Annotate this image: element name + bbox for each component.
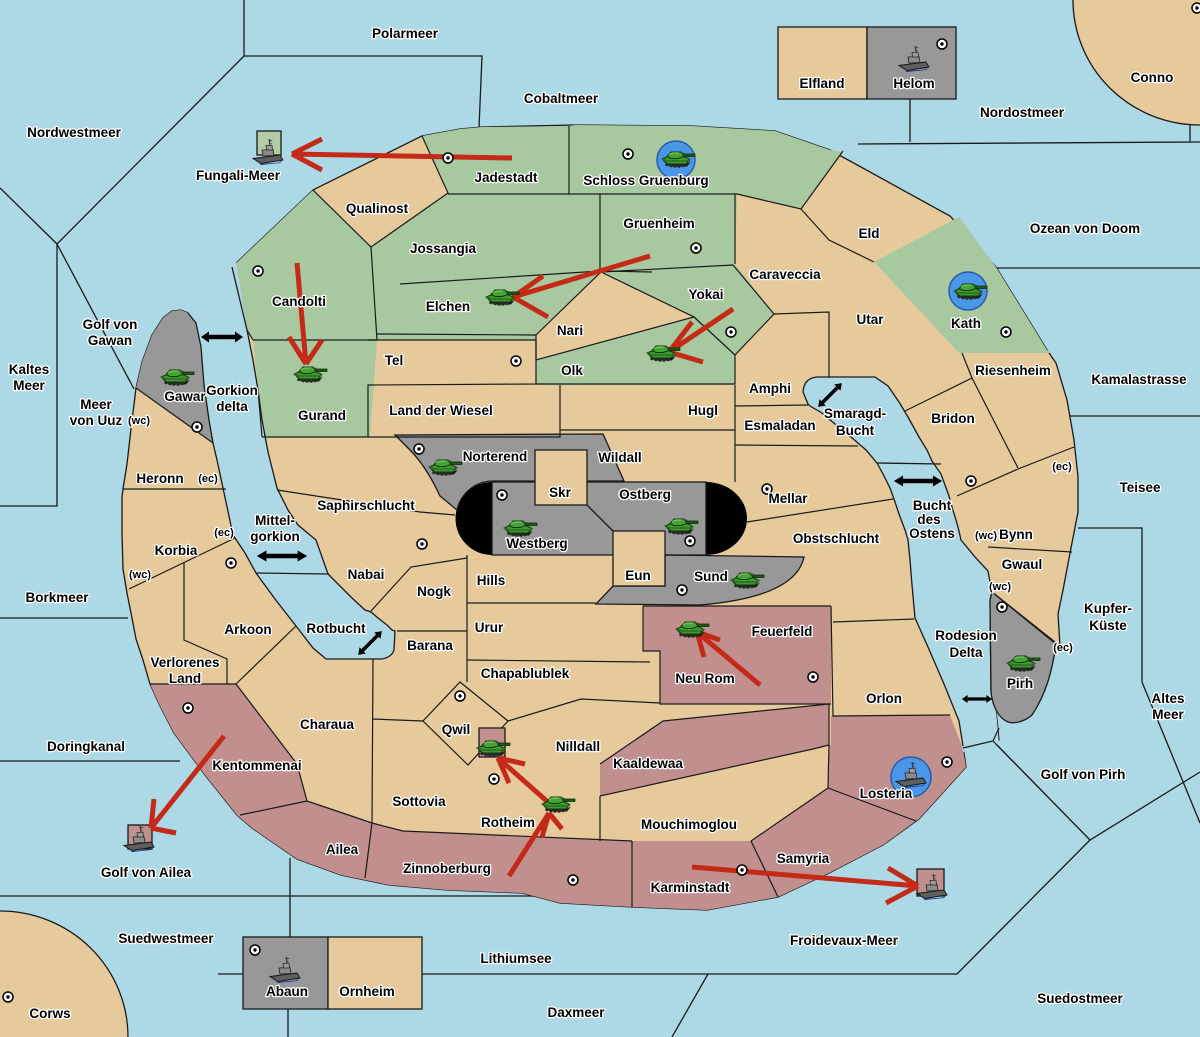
svg-text:Bucht: Bucht <box>836 423 875 438</box>
svg-text:Qwil: Qwil <box>442 722 471 737</box>
svg-text:(ec): (ec) <box>198 473 218 485</box>
svg-text:Esmaladan: Esmaladan <box>744 418 815 433</box>
svg-text:Borkmeer: Borkmeer <box>25 590 89 605</box>
svg-text:Arkoon: Arkoon <box>224 622 271 637</box>
svg-text:Delta: Delta <box>949 645 983 660</box>
svg-text:Suedostmeer: Suedostmeer <box>1037 991 1123 1006</box>
svg-text:Eun: Eun <box>625 568 651 583</box>
svg-text:Sottovia: Sottovia <box>392 794 446 809</box>
svg-text:Rodesion: Rodesion <box>935 628 997 643</box>
svg-text:(wc): (wc) <box>129 569 151 581</box>
svg-text:Doringkanal: Doringkanal <box>47 739 125 754</box>
svg-text:Saphirschlucht: Saphirschlucht <box>317 498 415 513</box>
svg-text:Smaragd-: Smaragd- <box>824 406 886 421</box>
svg-text:Gruenheim: Gruenheim <box>623 216 694 231</box>
svg-text:Land: Land <box>169 671 201 686</box>
svg-text:Lithiumsee: Lithiumsee <box>480 951 552 966</box>
svg-text:gorkion: gorkion <box>250 529 300 544</box>
svg-text:Sund: Sund <box>694 569 728 584</box>
svg-text:Pirh: Pirh <box>1007 676 1033 691</box>
svg-text:Korbia: Korbia <box>155 543 198 558</box>
svg-text:von Uuz: von Uuz <box>70 413 123 428</box>
svg-text:Kaaldewaa: Kaaldewaa <box>613 756 683 771</box>
svg-text:Golf von Ailea: Golf von Ailea <box>101 865 192 880</box>
svg-text:Karminstadt: Karminstadt <box>651 880 730 895</box>
svg-text:Nogk: Nogk <box>417 584 451 599</box>
svg-text:Conno: Conno <box>1131 70 1174 85</box>
svg-text:Elfland: Elfland <box>799 76 844 91</box>
svg-text:Nabai: Nabai <box>348 567 385 582</box>
svg-text:Nordwestmeer: Nordwestmeer <box>27 125 122 140</box>
svg-text:Mellar: Mellar <box>768 491 808 506</box>
svg-text:Rotbucht: Rotbucht <box>306 621 366 636</box>
svg-text:Orlon: Orlon <box>866 691 902 706</box>
svg-text:(ec): (ec) <box>1052 461 1072 473</box>
svg-text:Amphi: Amphi <box>749 381 791 396</box>
svg-text:Bucht: Bucht <box>913 498 952 513</box>
svg-text:Nari: Nari <box>557 323 583 338</box>
svg-text:Hills: Hills <box>477 573 506 588</box>
svg-text:Abaun: Abaun <box>266 984 308 999</box>
svg-text:Helom: Helom <box>893 76 934 91</box>
svg-text:(wc): (wc) <box>975 530 997 542</box>
svg-text:Samyria: Samyria <box>777 851 830 866</box>
svg-text:Kupfer-: Kupfer- <box>1084 601 1132 616</box>
svg-text:Meer: Meer <box>80 397 112 412</box>
svg-text:Gawar: Gawar <box>164 389 206 404</box>
svg-text:Jadestadt: Jadestadt <box>474 170 538 185</box>
svg-text:Bridon: Bridon <box>931 411 975 426</box>
svg-text:Froidevaux-Meer: Froidevaux-Meer <box>790 933 899 948</box>
svg-text:Zinnoberburg: Zinnoberburg <box>403 861 491 876</box>
svg-text:Mittel-: Mittel- <box>255 513 295 528</box>
svg-text:(ec): (ec) <box>1053 642 1073 654</box>
svg-text:Heronn: Heronn <box>136 471 183 486</box>
svg-text:Elchen: Elchen <box>426 299 470 314</box>
svg-text:Ostens: Ostens <box>909 526 955 541</box>
svg-text:Caraveccia: Caraveccia <box>749 267 821 282</box>
svg-text:Nordostmeer: Nordostmeer <box>980 105 1065 120</box>
svg-text:Kentommenai: Kentommenai <box>212 758 301 773</box>
svg-text:Olk: Olk <box>561 363 583 378</box>
svg-text:Kath: Kath <box>951 316 981 331</box>
svg-text:des: des <box>917 512 940 527</box>
svg-text:Polarmeer: Polarmeer <box>372 26 439 41</box>
svg-text:Golf von: Golf von <box>83 317 138 332</box>
svg-text:Candolti: Candolti <box>272 294 326 309</box>
svg-text:Teisee: Teisee <box>1119 480 1161 495</box>
svg-text:Fungali-Meer: Fungali-Meer <box>196 168 281 183</box>
svg-text:Eld: Eld <box>858 226 879 241</box>
svg-text:Kaltes: Kaltes <box>9 362 50 377</box>
svg-text:Yokai: Yokai <box>688 287 723 302</box>
svg-text:Chapablublek: Chapablublek <box>481 666 570 681</box>
svg-text:Ailea: Ailea <box>326 842 359 857</box>
svg-text:Corws: Corws <box>29 1006 70 1021</box>
svg-text:Gawan: Gawan <box>88 333 132 348</box>
svg-text:Utar: Utar <box>856 312 884 327</box>
svg-text:Gurand: Gurand <box>298 408 346 423</box>
svg-text:(ec): (ec) <box>214 527 234 539</box>
svg-text:Ostberg: Ostberg <box>619 487 671 502</box>
svg-text:Neu Rom: Neu Rom <box>675 671 734 686</box>
svg-text:Hugl: Hugl <box>688 403 718 418</box>
svg-text:Küste: Küste <box>1089 618 1127 633</box>
svg-text:Barana: Barana <box>407 638 453 653</box>
svg-text:Nilldall: Nilldall <box>556 739 600 754</box>
svg-text:Ozean von Doom: Ozean von Doom <box>1030 221 1140 236</box>
svg-text:(wc): (wc) <box>989 581 1011 593</box>
svg-text:Qualinost: Qualinost <box>346 201 409 216</box>
svg-text:Meer: Meer <box>13 378 45 393</box>
svg-text:Cobaltmeer: Cobaltmeer <box>524 91 599 106</box>
svg-text:Rotheim: Rotheim <box>481 815 535 830</box>
svg-text:Jossangia: Jossangia <box>410 241 477 256</box>
svg-text:Daxmeer: Daxmeer <box>547 1005 605 1020</box>
svg-text:Westberg: Westberg <box>506 536 567 551</box>
svg-text:Obstschlucht: Obstschlucht <box>793 531 880 546</box>
svg-text:Riesenheim: Riesenheim <box>975 363 1051 378</box>
svg-text:Feuerfeld: Feuerfeld <box>752 624 813 639</box>
svg-text:Tel: Tel <box>385 353 404 368</box>
svg-text:Meer: Meer <box>1152 707 1184 722</box>
svg-text:Verlorenes: Verlorenes <box>150 655 219 670</box>
svg-text:Golf von Pirh: Golf von Pirh <box>1041 767 1126 782</box>
svg-text:Kamalastrasse: Kamalastrasse <box>1091 372 1187 387</box>
svg-text:Mouchimoglou: Mouchimoglou <box>641 817 737 832</box>
svg-text:Schloss Gruenburg: Schloss Gruenburg <box>583 173 708 188</box>
svg-text:Land der Wiesel: Land der Wiesel <box>389 403 492 418</box>
svg-text:Suedwestmeer: Suedwestmeer <box>118 931 214 946</box>
svg-text:Bynn: Bynn <box>999 527 1033 542</box>
svg-text:Altes: Altes <box>1151 691 1184 706</box>
svg-text:Losteria: Losteria <box>860 786 913 801</box>
svg-text:Skr: Skr <box>549 485 572 500</box>
svg-text:delta: delta <box>216 399 248 414</box>
svg-text:(wc): (wc) <box>128 415 150 427</box>
svg-text:Norterend: Norterend <box>463 449 528 464</box>
svg-text:Gwaul: Gwaul <box>1002 557 1043 572</box>
svg-text:Gorkion: Gorkion <box>206 383 258 398</box>
svg-text:Urur: Urur <box>475 620 504 635</box>
svg-text:Ornheim: Ornheim <box>339 984 395 999</box>
svg-text:Charaua: Charaua <box>300 717 355 732</box>
svg-text:Wildall: Wildall <box>598 450 641 465</box>
